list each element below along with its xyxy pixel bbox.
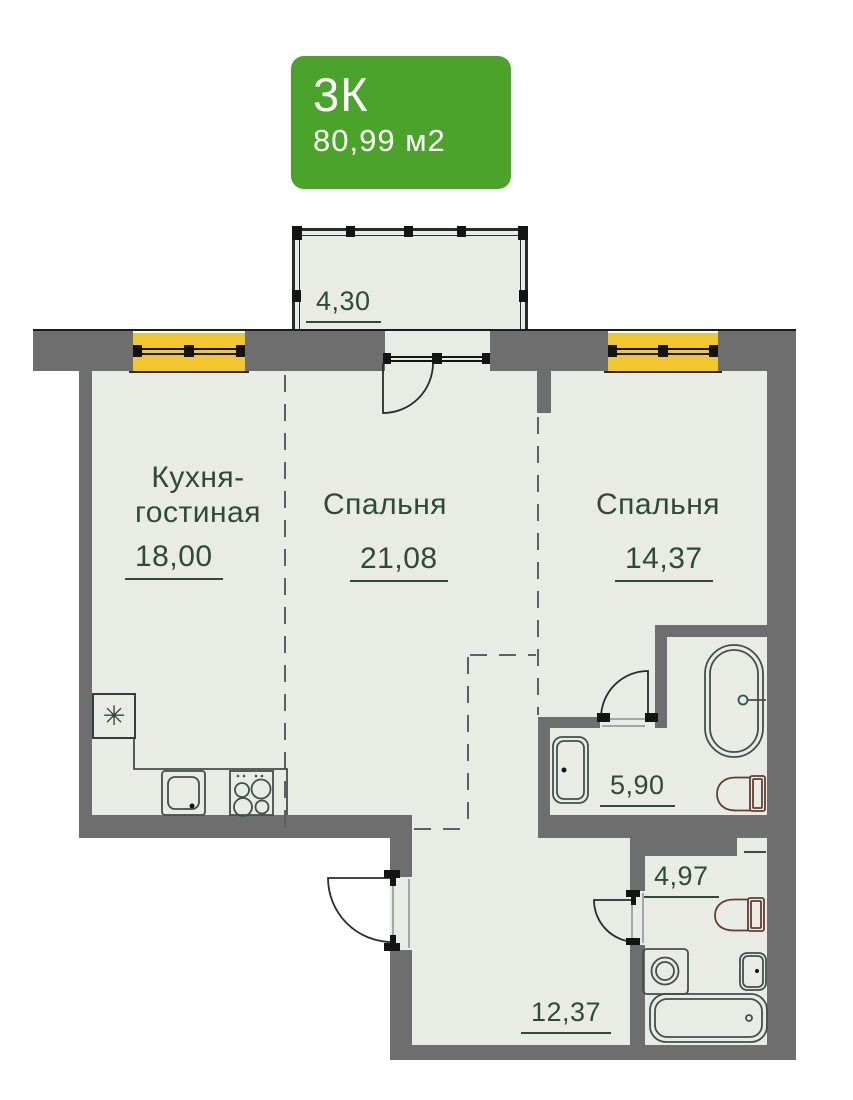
bedroom1-label: Спальня bbox=[310, 487, 460, 522]
floor-plan: 3К 80,99 м2 bbox=[0, 0, 853, 1100]
kitchen-living-name-line2: гостиная bbox=[100, 495, 296, 530]
bathroom2-area: 4,97 bbox=[644, 861, 719, 898]
kitchen-living-label: Кухня- гостиная bbox=[100, 460, 296, 530]
bedroom2-label: Спальня bbox=[583, 487, 733, 522]
bedroom1-area: 21,08 bbox=[350, 542, 448, 582]
kitchen-counter-icon bbox=[134, 738, 287, 815]
sink-icon bbox=[740, 953, 766, 990]
door-swing-icon bbox=[328, 363, 648, 942]
bedroom2-area: 14,37 bbox=[615, 542, 713, 582]
bathtub-icon bbox=[650, 994, 767, 1042]
kitchen-sink-icon bbox=[162, 771, 205, 815]
kitchen-living-area: 18,00 bbox=[125, 540, 223, 580]
vent-shaft-icon: ✳ bbox=[93, 699, 135, 733]
dashed-partition bbox=[285, 375, 538, 829]
stove-icon bbox=[230, 771, 273, 816]
toilet-icon bbox=[717, 776, 765, 811]
washing-machine-icon bbox=[643, 949, 688, 994]
door-frame-marks bbox=[384, 713, 658, 951]
bathroom1-area: 5,90 bbox=[600, 770, 675, 807]
balcony-area: 4,30 bbox=[306, 286, 381, 323]
hallway-area: 12,37 bbox=[521, 997, 611, 1034]
bathtub-icon bbox=[705, 645, 766, 757]
door-jamb-lines bbox=[393, 719, 645, 948]
window-glazing-icon bbox=[133, 349, 718, 361]
sink-icon bbox=[553, 737, 588, 803]
toilet-icon bbox=[715, 898, 764, 931]
kitchen-living-name-line1: Кухня- bbox=[100, 460, 296, 495]
